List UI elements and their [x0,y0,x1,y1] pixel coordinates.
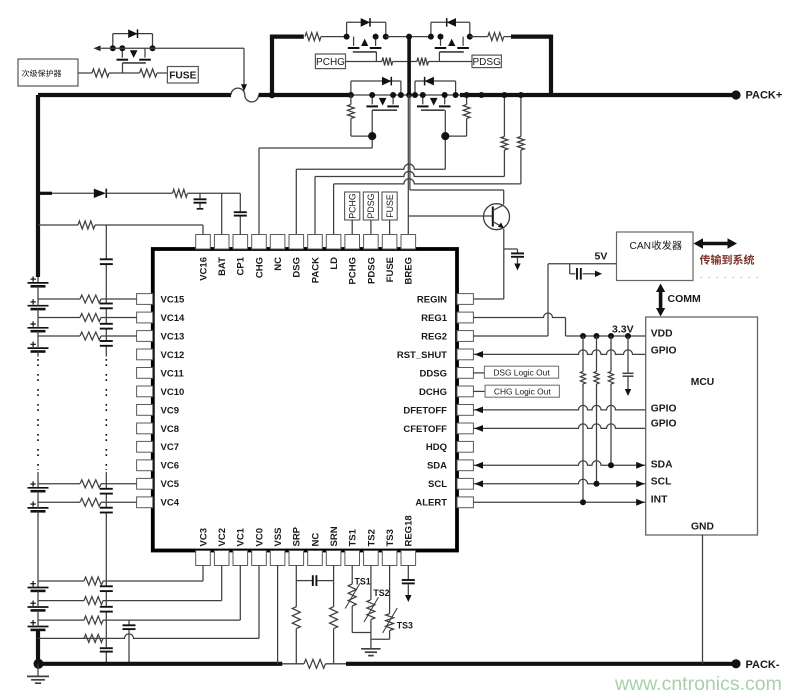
svg-text:PACK-: PACK- [746,659,780,671]
svg-text:DSG: DSG [292,257,303,278]
svg-text:SRP: SRP [292,526,303,546]
svg-text:TS1: TS1 [348,528,359,546]
svg-text:REG18: REG18 [404,515,415,546]
svg-text:VC16: VC16 [198,257,209,281]
svg-text:COMM: COMM [668,293,701,305]
svg-text:CFETOFF: CFETOFF [403,424,447,435]
svg-text:VC7: VC7 [161,442,179,453]
svg-text:REG2: REG2 [421,331,447,342]
svg-text:PCHG: PCHG [316,57,345,68]
svg-text:PDSG: PDSG [366,257,377,284]
svg-text:VC13: VC13 [161,331,185,342]
svg-text:3.3V: 3.3V [612,323,634,335]
svg-text:FUSE: FUSE [169,71,196,82]
svg-text:VC9: VC9 [161,405,179,416]
svg-text:TS2: TS2 [366,529,377,546]
svg-text:VC2: VC2 [217,528,228,546]
svg-text:BREG: BREG [404,257,415,284]
svg-text:TS1: TS1 [355,576,371,586]
svg-text:VC14: VC14 [161,313,185,324]
svg-text:CP1: CP1 [236,256,247,275]
svg-text:NC: NC [273,257,284,271]
svg-text:SCL: SCL [651,477,672,488]
svg-text:TS3: TS3 [397,620,413,630]
svg-text:DFETOFF: DFETOFF [403,405,447,416]
svg-text:PACK: PACK [310,257,321,283]
svg-text:FUSE: FUSE [385,194,395,218]
svg-text:TS2: TS2 [373,588,389,598]
svg-text:VC12: VC12 [161,350,185,361]
svg-text:HDQ: HDQ [426,442,447,453]
svg-text:DCHG: DCHG [419,387,447,398]
svg-text:GPIO: GPIO [651,345,677,356]
svg-text:VC10: VC10 [161,387,185,398]
svg-text:PDSG: PDSG [473,57,502,68]
svg-text:SDA: SDA [651,460,673,471]
svg-text:VC1: VC1 [236,527,247,546]
svg-text:VC0: VC0 [254,528,265,546]
svg-text:INT: INT [651,494,668,505]
svg-text:VC5: VC5 [161,479,180,490]
svg-text:DDSG: DDSG [420,368,447,379]
svg-text:FUSE: FUSE [385,257,396,282]
svg-text:SCL: SCL [428,479,447,490]
svg-text:www.cntronics.com: www.cntronics.com [614,673,782,695]
svg-text:REGIN: REGIN [417,294,447,305]
svg-text:VSS: VSS [273,527,284,546]
svg-text:VC8: VC8 [161,424,179,435]
svg-text:VDD: VDD [651,329,673,340]
svg-text:NC: NC [310,533,321,547]
svg-text:GPIO: GPIO [651,419,677,430]
svg-text:LD: LD [329,257,340,270]
svg-text:CHG: CHG [254,257,265,278]
svg-text:GPIO: GPIO [651,404,677,415]
svg-text:VC15: VC15 [161,294,185,305]
svg-text:PACK+: PACK+ [746,90,783,102]
svg-text:MCU: MCU [691,377,714,388]
svg-text:CAN: CAN [630,241,652,252]
svg-text:VC3: VC3 [198,528,209,546]
svg-text:VC6: VC6 [161,461,179,472]
svg-text:GND: GND [691,522,714,533]
svg-text:BAT: BAT [217,257,228,276]
svg-text:REG1: REG1 [421,313,448,324]
svg-text:PCHG: PCHG [348,257,359,284]
svg-text:ALERT: ALERT [415,498,447,509]
svg-text:VC4: VC4 [161,498,180,509]
svg-text:TS3: TS3 [385,529,396,546]
svg-text:RST_SHUT: RST_SHUT [397,350,447,361]
svg-text:SDA: SDA [427,461,447,472]
svg-text:PCHG: PCHG [347,193,357,219]
svg-text:5V: 5V [595,250,608,262]
svg-text:PDSG: PDSG [366,193,376,218]
svg-text:DSG Logic Out: DSG Logic Out [493,368,550,378]
svg-text:CHG Logic Out: CHG Logic Out [494,387,551,397]
svg-text:VC11: VC11 [161,368,185,379]
svg-text:SRN: SRN [329,526,340,546]
